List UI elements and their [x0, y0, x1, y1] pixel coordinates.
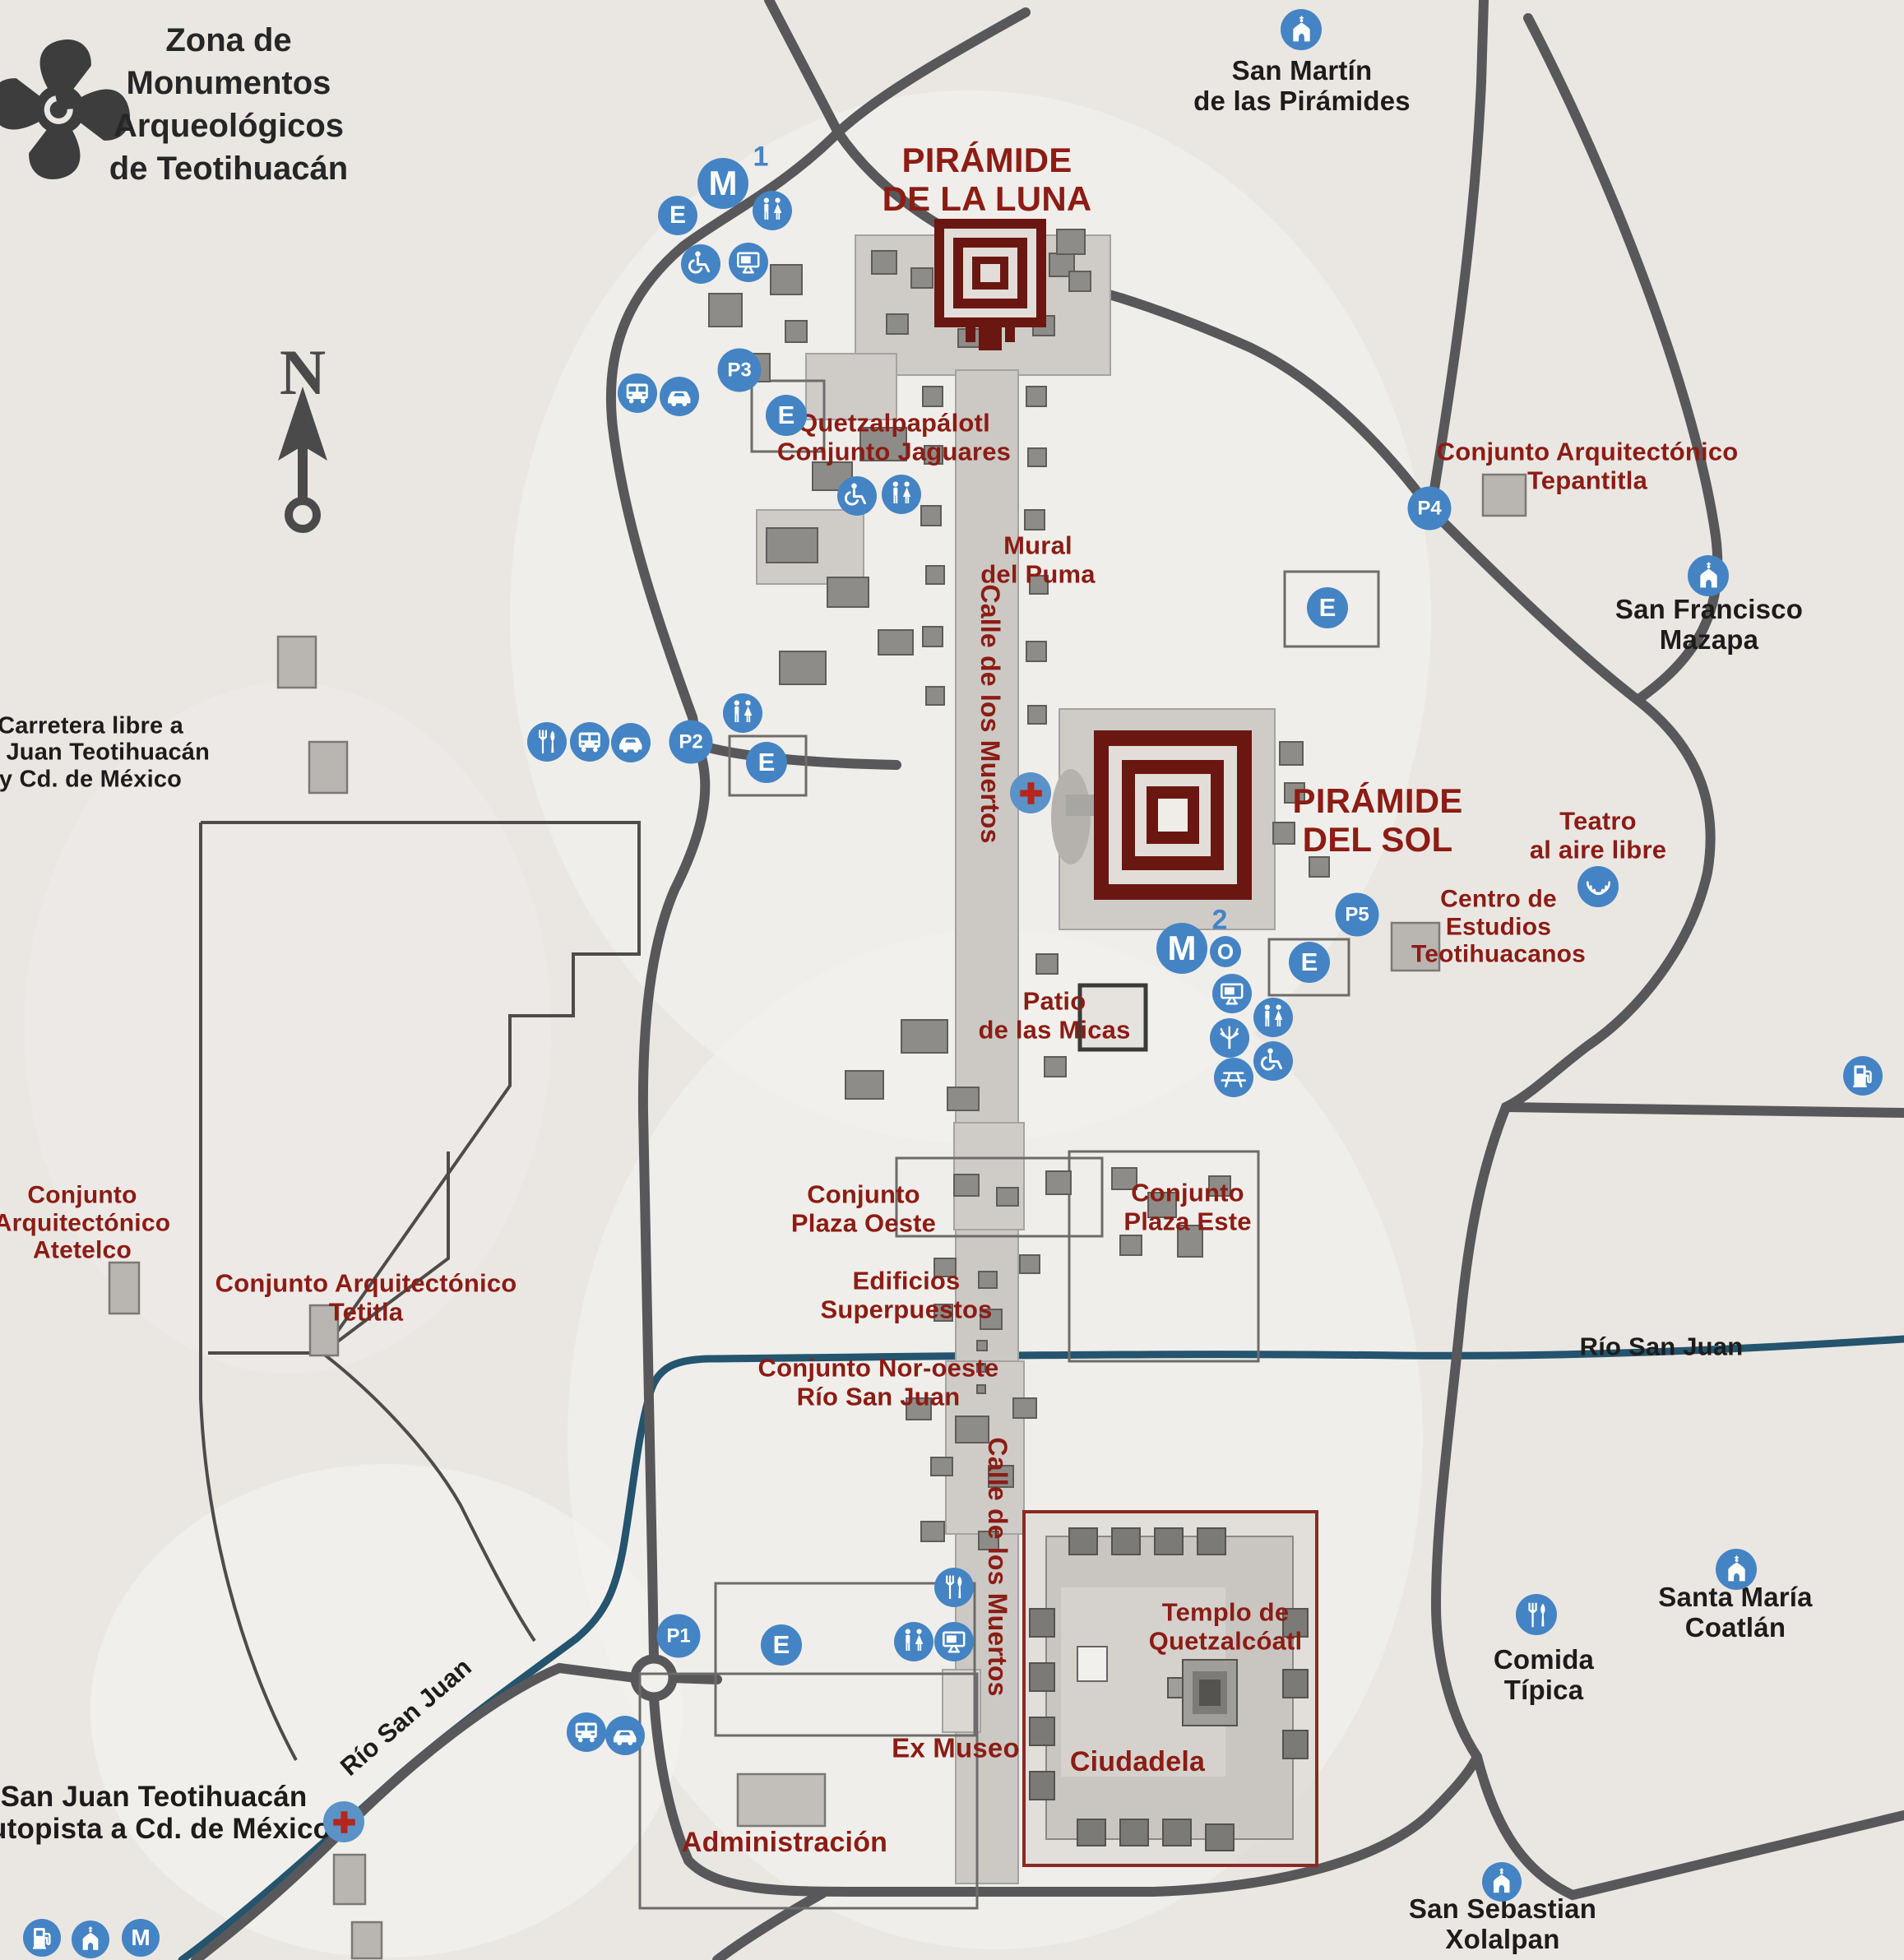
parking-p1-marker: P1	[657, 1615, 701, 1658]
label-ciudadela: Ciudadela	[1070, 1746, 1205, 1777]
restroom-icon	[882, 475, 921, 514]
parking-p2-marker: P2	[669, 721, 713, 764]
label-comida-tipica: Comida Típica	[1494, 1645, 1594, 1706]
bus-icon	[618, 373, 657, 413]
wheelchair-icon	[681, 244, 720, 284]
label-tepantitla: Conjunto Arquitectónico Tepantitla	[1437, 438, 1739, 494]
taxi-icon	[605, 1716, 645, 1755]
museum-2-icon: M	[1156, 923, 1207, 974]
label-piramide-luna: PIRÁMIDE DE LA LUNA	[883, 141, 1092, 218]
label-centro-estudios: Centro de Estudios Teotihuacanos	[1411, 886, 1586, 969]
label-patio-micas: Patio de las Micas	[978, 987, 1130, 1044]
church-icon	[1716, 1549, 1757, 1590]
audiovisual-icon	[934, 1622, 974, 1661]
wheelchair-icon	[1253, 1041, 1293, 1081]
label-atetelco: Conjunto Arquitectónico Atetelco	[0, 1182, 170, 1265]
parking-icon: E	[1307, 587, 1348, 628]
restaurant-icon	[934, 1568, 974, 1607]
road-east-spur	[1506, 1107, 1904, 1113]
restroom-icon	[753, 191, 792, 230]
label-plaza-oeste: Conjunto Plaza Oeste	[791, 1180, 936, 1237]
bus-icon	[570, 722, 609, 762]
road-east-loop	[1431, 510, 1711, 1757]
parking-icon: E	[1289, 942, 1330, 983]
label-a-san-juan: A San Juan Teotihuacán y autopista a Cd.…	[0, 1781, 331, 1845]
map-graphics	[0, 0, 1904, 1960]
restroom-icon	[894, 1622, 933, 1661]
monument-m-icon: M	[122, 1919, 160, 1957]
church-icon	[1281, 9, 1322, 50]
label-san-martin: San Martín de las Pirámides	[1193, 56, 1411, 117]
tree-icon	[1210, 1018, 1249, 1058]
church-icon	[1688, 555, 1729, 596]
label-tetitla: Conjunto Arquitectónico Tetitla	[215, 1269, 517, 1326]
label-administracion: Administración	[682, 1827, 887, 1858]
label-mural-puma: Mural del Puma	[980, 531, 1095, 588]
parking-icon: E	[746, 742, 787, 783]
label-san-francisco-mazapa: San Francisco Mazapa	[1615, 595, 1803, 656]
road-p4-north	[1431, 0, 1484, 510]
parking-icon: E	[766, 395, 807, 436]
audiovisual-icon	[1212, 974, 1252, 1013]
label-ex-museo: Ex Museo	[892, 1734, 1020, 1764]
label-piramide-sol: PIRÁMIDE DEL SOL	[1293, 781, 1463, 859]
wheelchair-icon	[837, 476, 877, 516]
taxi-icon	[660, 377, 699, 416]
restroom-icon	[723, 693, 762, 733]
label-edificios-superpuestos: Edificios Superpuestos	[820, 1267, 992, 1323]
parking-icon: E	[761, 1624, 802, 1666]
road-bottom-exit	[717, 1893, 822, 1960]
map-title: Zona de Monumentos Arqueológicos de Teot…	[109, 19, 348, 190]
label-conjunto-noroeste: Conjunto Nor-oeste Río San Juan	[758, 1354, 999, 1411]
teotihuacan-site-map: Zona de Monumentos Arqueológicos de Teot…	[0, 0, 1904, 1960]
church-icon	[72, 1921, 109, 1958]
label-santa-maria-coatlan: Santa María Coatlán	[1658, 1582, 1812, 1643]
compass-north-label: N	[280, 336, 326, 410]
museum-2-number: 2	[1212, 905, 1228, 937]
audiovisual-icon	[729, 243, 768, 282]
label-rio-san-juan-east: Río San Juan	[1580, 1333, 1744, 1362]
label-templo-quetzalcoatl: Templo de Quetzalcóatl	[1149, 1598, 1303, 1655]
parking-p4-marker: P4	[1408, 487, 1452, 531]
label-calle-muertos-south: Calle de los Muertos	[982, 1437, 1012, 1696]
bus-icon	[567, 1712, 606, 1752]
first-aid-icon	[1010, 772, 1051, 813]
gas-station-icon	[1843, 1056, 1883, 1096]
restaurant-icon	[1516, 1594, 1557, 1635]
road-roundabout-east	[672, 1678, 717, 1680]
theater-icon	[1577, 866, 1619, 907]
label-carretera-libre: Carretera libre a an Juan Teotihuacán y …	[0, 712, 210, 792]
museum-1-icon: M	[697, 158, 748, 209]
parking-icon: E	[658, 196, 697, 235]
restroom-icon	[1253, 998, 1293, 1037]
lookout-icon: O	[1210, 936, 1241, 967]
taxi-icon	[611, 723, 651, 762]
gas-station-icon	[23, 1919, 61, 1957]
church-icon	[1482, 1862, 1522, 1902]
road-bottomright-exit	[1477, 1757, 1904, 1895]
ciudadela-glyph	[1024, 1512, 1317, 1865]
label-teatro: Teatro al aire libre	[1530, 807, 1666, 864]
picnic-table-icon	[1214, 1058, 1253, 1097]
restaurant-icon	[527, 722, 567, 762]
museum-1-number: 1	[753, 141, 769, 174]
label-quetzalpapalotl: Quetzalpapálotl Conjunto Jaguares	[777, 409, 1011, 466]
parking-p5-marker: P5	[1336, 893, 1379, 937]
label-plaza-este: Conjunto Plaza Este	[1123, 1179, 1251, 1235]
first-aid-icon	[323, 1801, 364, 1842]
parking-p3-marker: P3	[718, 349, 762, 392]
label-calle-muertos-north: Calle de los Muertos	[975, 584, 1004, 843]
label-san-sebastian-xolalpan: San Sebastian Xolalpan	[1409, 1894, 1596, 1955]
